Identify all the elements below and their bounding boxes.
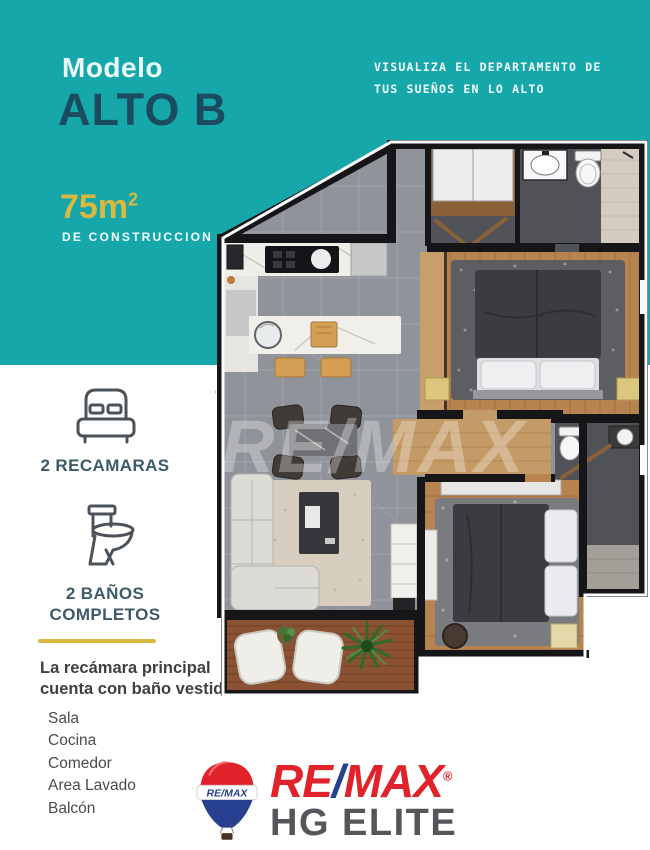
list-item: Cocina <box>48 730 136 752</box>
amenities-list: Sala Cocina Comedor Area Lavado Balcón <box>48 708 136 820</box>
area-superscript: 2 <box>128 190 138 210</box>
brand-re: RE <box>270 755 332 807</box>
area-number: 75m <box>60 188 128 226</box>
list-item: Comedor <box>48 753 136 775</box>
tagline: VISUALIZA EL DEPARTAMENTO DE TUS SUEÑOS … <box>374 57 614 101</box>
bathrooms-label-line2: COMPLETOS <box>50 605 161 624</box>
area-caption: DE CONSTRUCCION <box>62 230 213 244</box>
description-line2: cuenta con baño vestidor <box>40 680 240 698</box>
description-line1: La recámara principal <box>40 659 211 677</box>
page-title: ALTO B <box>58 84 227 136</box>
bedrooms-label: 2 RECAMARAS <box>20 455 190 476</box>
list-item: Sala <box>48 708 136 730</box>
description: La recámara principal cuenta con baño ve… <box>40 658 240 701</box>
office-name: HG ELITE <box>270 804 457 842</box>
bathrooms-label-line1: 2 BAÑOS <box>66 584 144 603</box>
tagline-line2: TUS SUEÑOS EN LO ALTO <box>374 82 545 96</box>
balloon-label: RE/MAX <box>207 788 249 800</box>
area-value: 75m2 <box>60 188 138 227</box>
tagline-line1: VISUALIZA EL DEPARTAMENTO DE <box>374 60 601 74</box>
remax-watermark: RE/MAX <box>221 405 528 488</box>
brand-max: MAX <box>344 755 443 807</box>
remax-balloon-icon: RE/MAX <box>190 760 264 842</box>
brand-slash: / <box>332 755 344 807</box>
brand-registered-mark: ® <box>443 769 452 784</box>
remax-logo: RE/MAX RE/MAX® HG ELITE <box>190 760 457 842</box>
list-item: Area Lavado <box>48 775 136 797</box>
floor-plan-image: RE/MAX <box>215 140 648 700</box>
remax-name: RE/MAX® <box>270 760 457 804</box>
flyer: Modelo ALTO B VISUALIZA EL DEPARTAMENTO … <box>0 0 650 850</box>
model-label: Modelo <box>62 52 163 84</box>
bathrooms-label: 2 BAÑOS COMPLETOS <box>20 583 190 626</box>
remax-wordmark: RE/MAX® HG ELITE <box>270 760 457 842</box>
list-item: Balcón <box>48 798 136 820</box>
bed-icon <box>55 383 155 452</box>
toilet-icon <box>55 500 155 583</box>
yellow-divider <box>38 639 156 643</box>
